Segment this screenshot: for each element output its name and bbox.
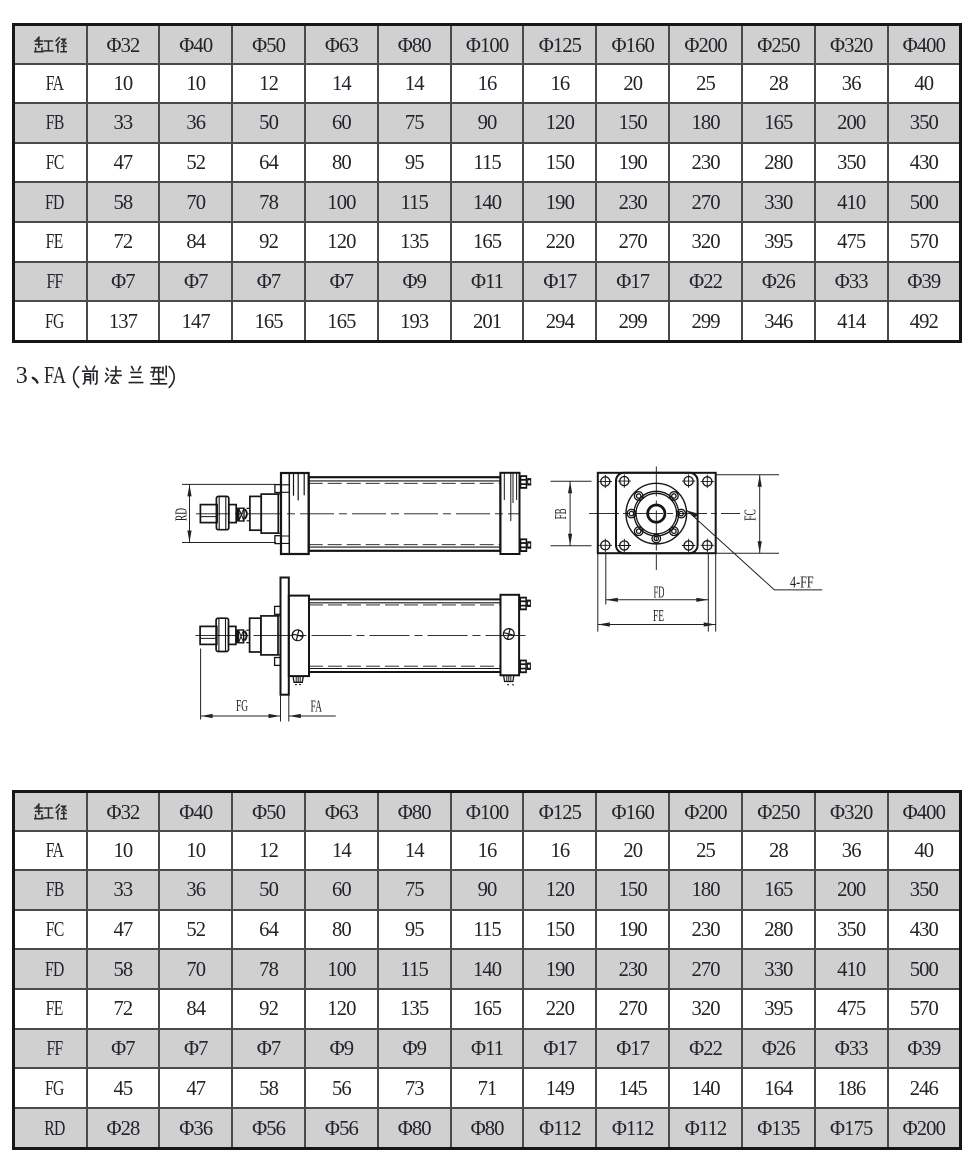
svg-text:FA: FA [311,697,323,716]
svg-text:RD: RD [172,508,191,521]
svg-text:FB: FB [551,508,570,519]
svg-text:FD: FD [654,583,665,602]
svg-text:FG: FG [236,696,248,715]
svg-text:FC: FC [741,509,760,521]
svg-text:4-FF: 4-FF [790,572,814,591]
svg-text:FE: FE [653,606,664,625]
